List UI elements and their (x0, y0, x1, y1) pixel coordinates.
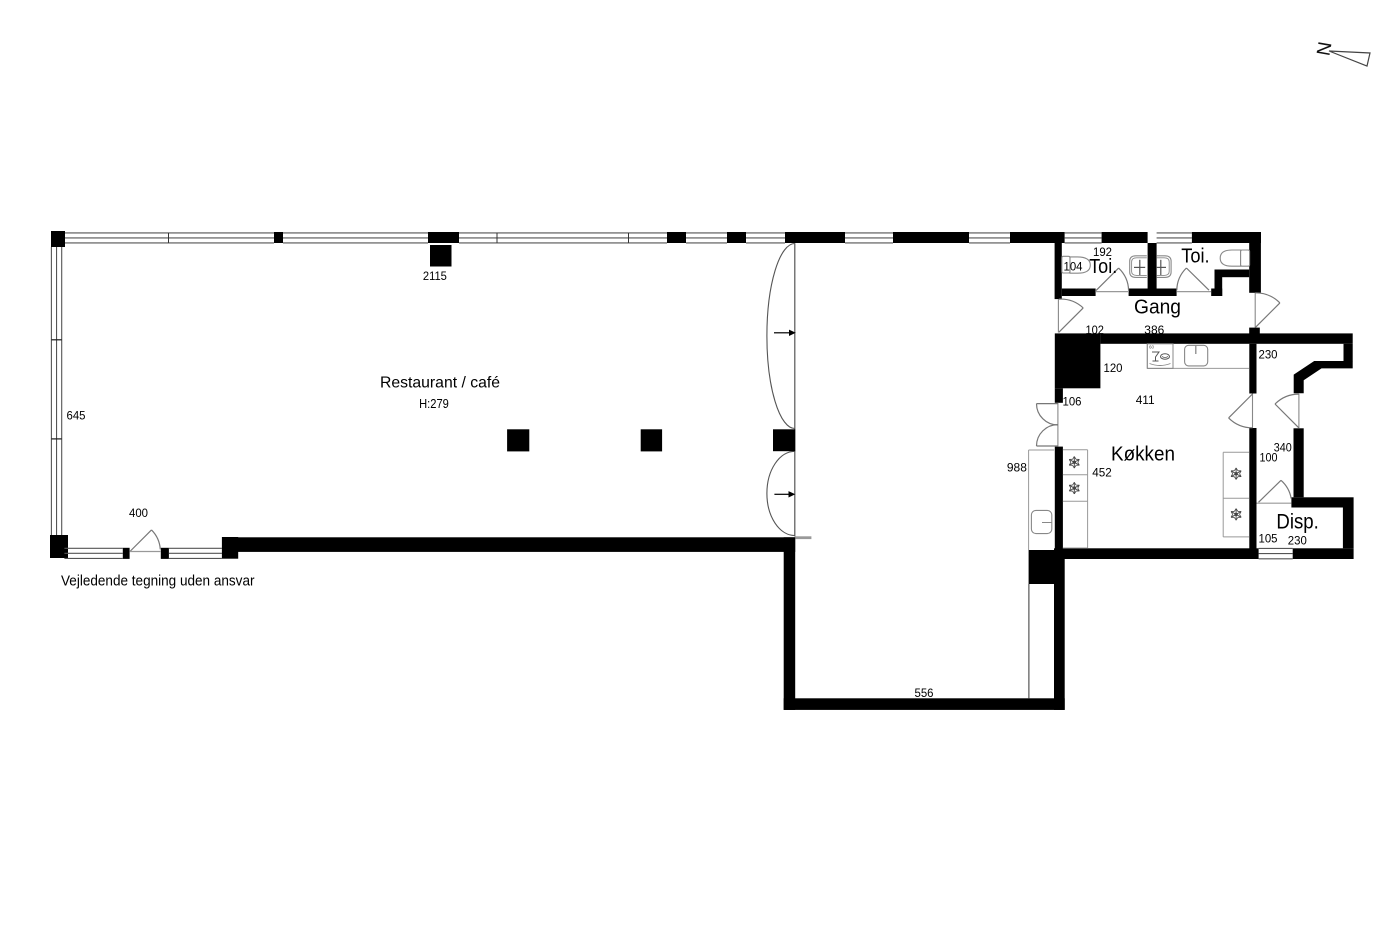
svg-text:400: 400 (129, 506, 148, 520)
svg-text:645: 645 (67, 409, 86, 423)
svg-text:105: 105 (1259, 532, 1278, 546)
svg-text:Gang: Gang (1134, 297, 1181, 319)
svg-text:230: 230 (1288, 534, 1307, 548)
svg-text:100: 100 (1260, 451, 1278, 465)
svg-text:Vejledende tegning uden ansvar: Vejledende tegning uden ansvar (61, 574, 255, 590)
svg-text:Disp.: Disp. (1276, 510, 1318, 533)
svg-text:120: 120 (1104, 361, 1123, 375)
svg-text:452: 452 (1092, 465, 1112, 479)
svg-text:Toi.: Toi. (1089, 256, 1117, 278)
svg-text:Restaurant / café: Restaurant / café (380, 375, 500, 392)
svg-text:H:279: H:279 (419, 396, 449, 411)
svg-text:60: 60 (1149, 345, 1155, 350)
svg-text:2115: 2115 (423, 269, 447, 283)
svg-text:106: 106 (1063, 394, 1082, 408)
svg-text:556: 556 (915, 686, 934, 700)
svg-text:988: 988 (1007, 460, 1027, 474)
svg-text:411: 411 (1136, 393, 1155, 407)
svg-text:Toi.: Toi. (1181, 245, 1209, 267)
svg-text:Køkken: Køkken (1111, 444, 1175, 466)
svg-text:104: 104 (1064, 260, 1083, 274)
svg-text:230: 230 (1259, 348, 1278, 362)
